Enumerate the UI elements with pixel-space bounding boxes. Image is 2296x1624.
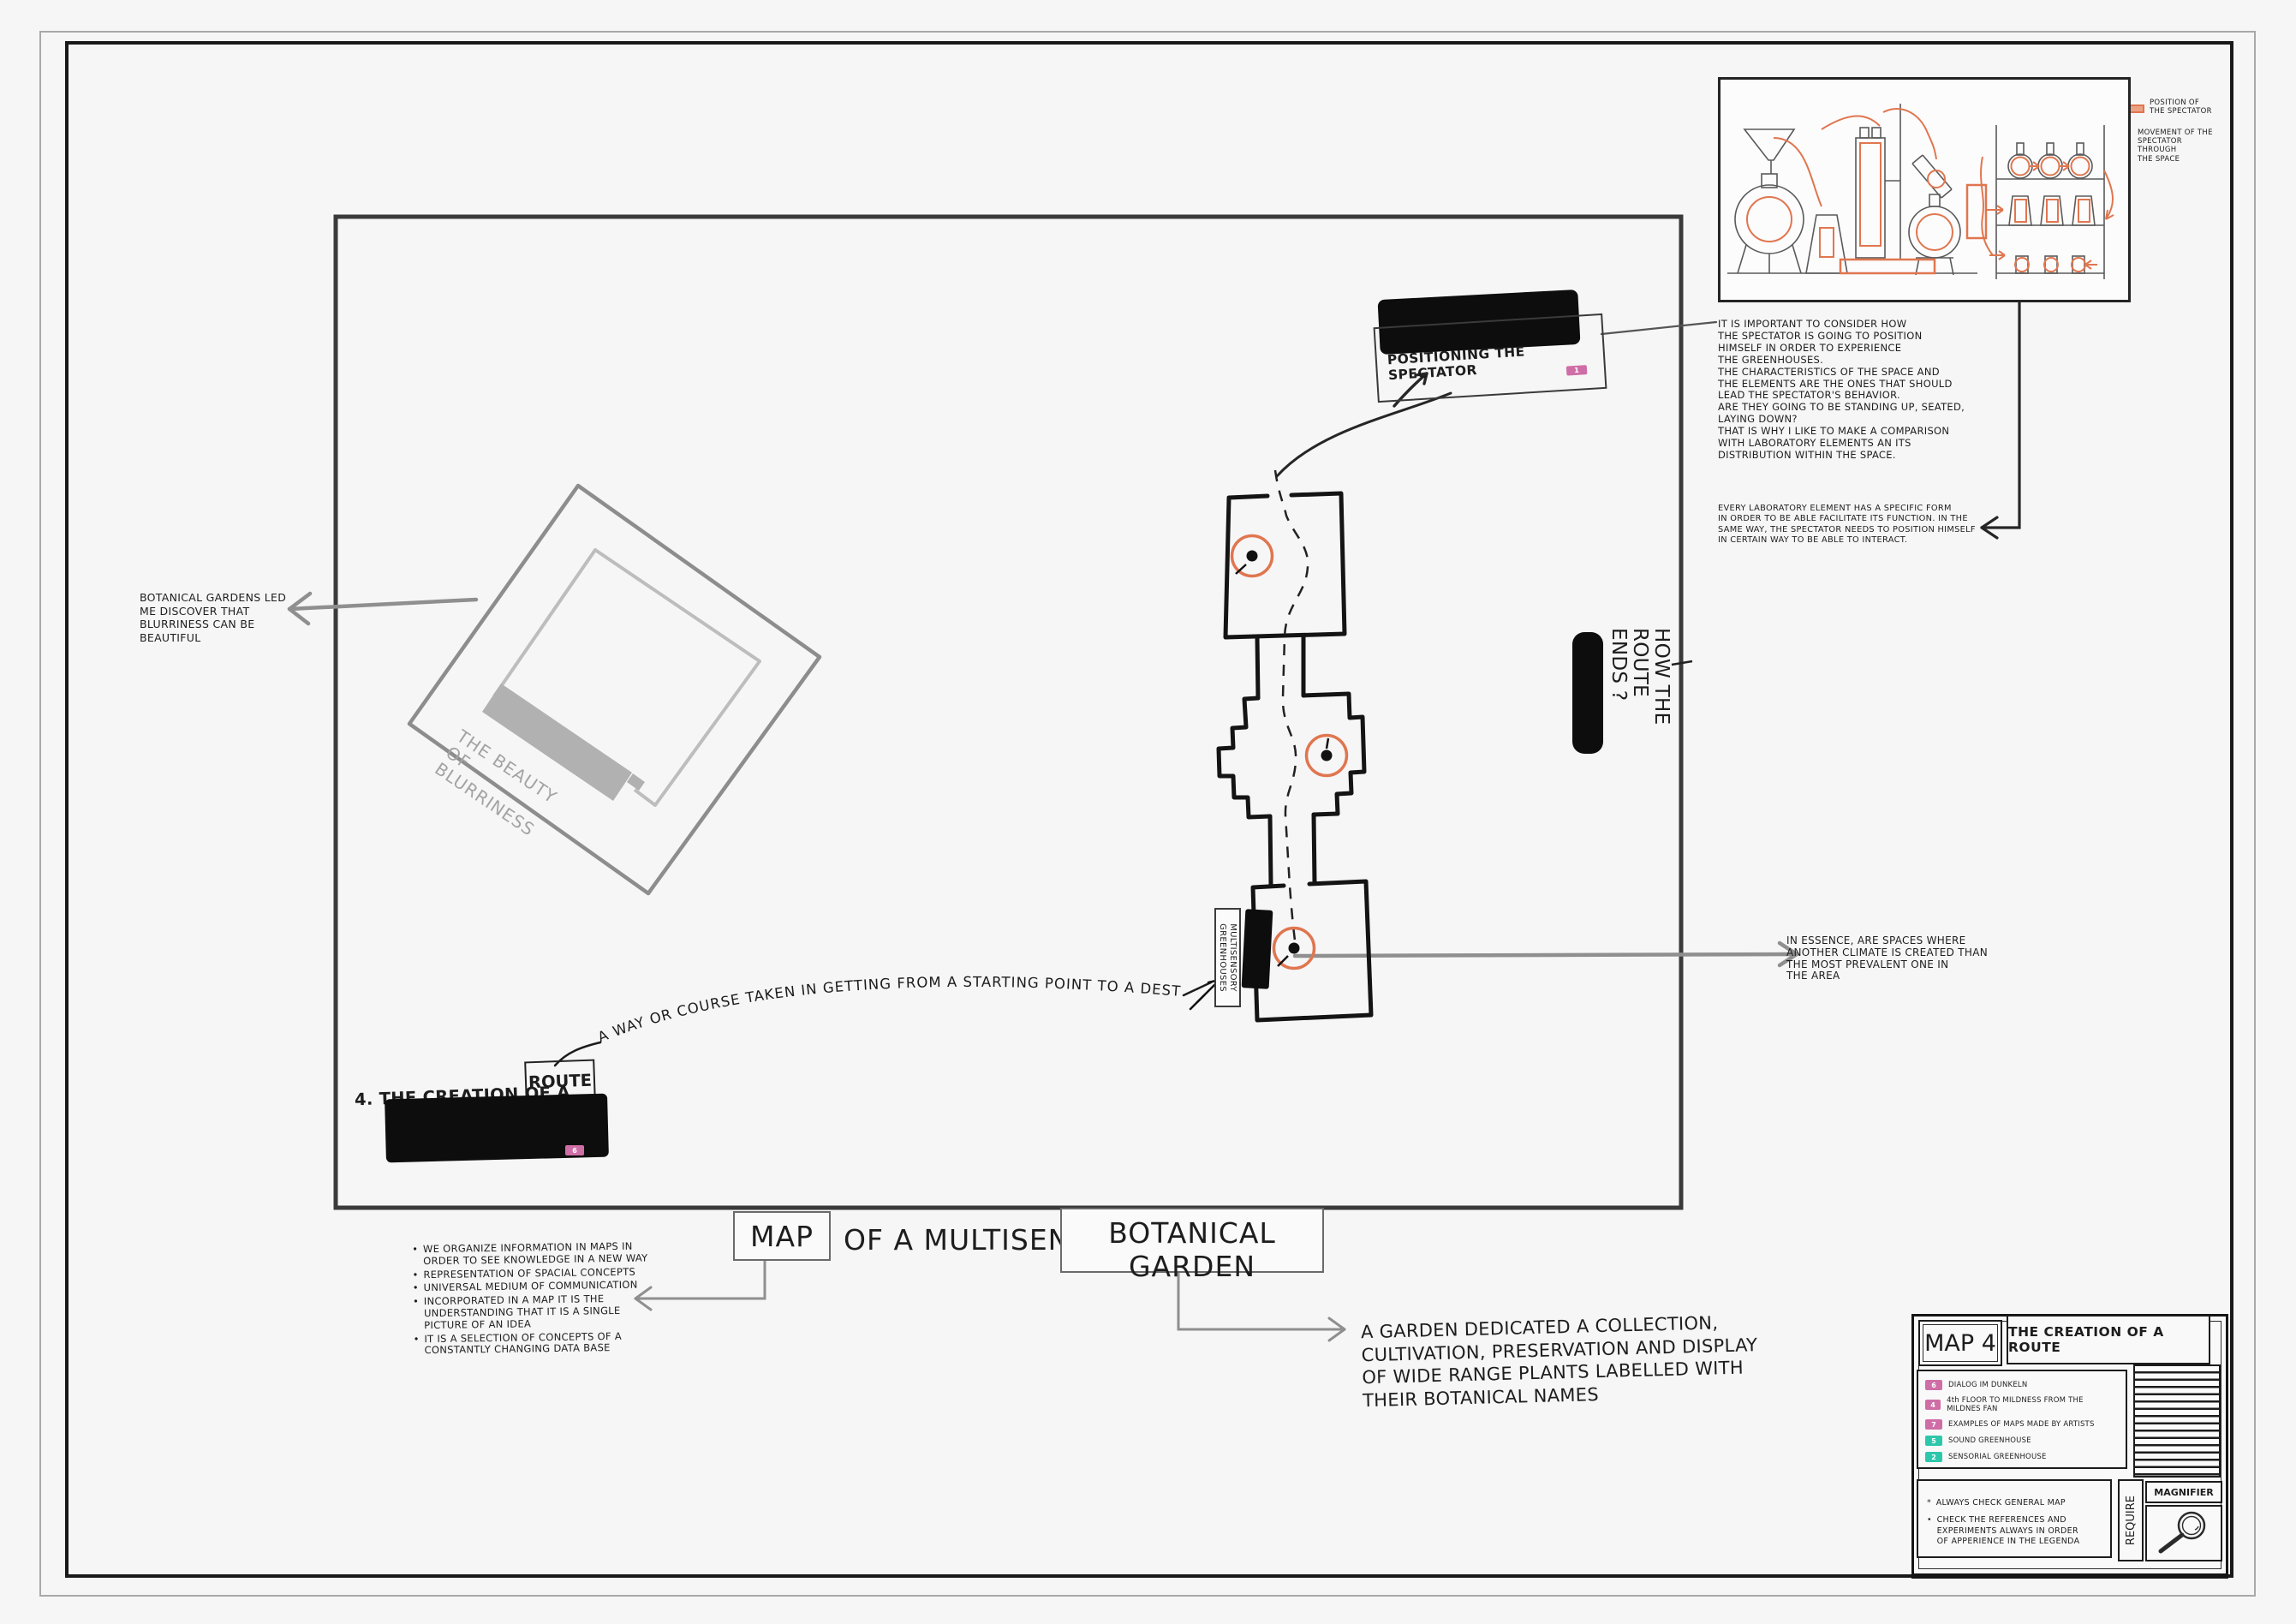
garden-definition: A GARDEN DEDICATED A COLLECTION, CULTIVA… [1361, 1311, 1774, 1412]
legend-item: 6 DIALOG IM DUNKELN [1925, 1380, 2119, 1390]
note-item: * ALWAYS CHECK GENERAL MAP [1927, 1498, 2102, 1508]
bullet-icon: • [413, 1296, 419, 1331]
map-word-box: MAP [733, 1211, 831, 1261]
require-box: REQUIRE [2118, 1479, 2144, 1561]
redacted-bar-greenhouse [1242, 909, 1273, 989]
bullet-icon: • [1927, 1515, 1932, 1547]
greenhouses-label: MULTISENSORY GREENHOUSES [1214, 908, 1241, 1007]
legend-item: 4 4th FLOOR TO MILDNESS FROM THE MILDNES… [1925, 1396, 2119, 1413]
sheet-name-box: THE CREATION OF A ROUTE [2007, 1315, 2210, 1364]
notes-box: * ALWAYS CHECK GENERAL MAP • CHECK THE R… [1917, 1479, 2112, 1558]
reference-badge: 6 [565, 1145, 584, 1155]
bullet-icon: • [412, 1244, 418, 1268]
botanical-garden-box: BOTANICAL GARDEN [1060, 1208, 1324, 1273]
note-item: • CHECK THE REFERENCES AND EXPERIMENTS A… [1927, 1515, 2102, 1547]
asterisk-icon: * [1927, 1498, 1931, 1508]
in-essence-note: IN ESSENCE, ARE SPACES WHERE ANOTHER CLI… [1786, 935, 2009, 982]
magnifier-label: MAGNIFIER [2154, 1487, 2213, 1498]
legend-badge: 7 [1925, 1419, 1942, 1430]
legend-badge: 6 [1925, 1380, 1942, 1390]
magnifier-label-box: MAGNIFIER [2145, 1481, 2222, 1503]
legend-box: 6 DIALOG IM DUNKELN 4 4th FLOOR TO MILDN… [1917, 1370, 2127, 1469]
legend-item: 2 SENSORIAL GREENHOUSE [1925, 1452, 2119, 1462]
reference-badge: 1 [1566, 365, 1588, 375]
map-number: MAP 4 [1920, 1322, 2001, 1364]
lab-legend-movement-label: MOVEMENT OF THE SPECTATOR THROUGH THE SP… [2138, 128, 2223, 164]
laboratory-illustration-box [1718, 77, 2131, 302]
legend-badge: 2 [1925, 1452, 1942, 1462]
bullet-icon: • [414, 1334, 420, 1358]
sheet-name: THE CREATION OF A ROUTE [2008, 1317, 2209, 1363]
botanical-gardens-note: BOTANICAL GARDENS LED ME DISCOVER THAT B… [140, 591, 311, 644]
magnifier-icon [2147, 1507, 2217, 1556]
legend-badge: 4 [1925, 1400, 1941, 1410]
magnifier-icon-box [2145, 1505, 2222, 1561]
drawing-sheet: A WAY OR COURSE TAKEN IN GETTING FROM A … [0, 0, 2296, 1624]
list-item: •IT IS A SELECTION OF CONCEPTS OF A CONS… [414, 1329, 696, 1357]
laboratory-sketch [1721, 80, 2123, 295]
legend-badge: 5 [1925, 1436, 1942, 1446]
title-block: MAP 4 THE CREATION OF A ROUTE 6 DIALOG I… [1911, 1314, 2228, 1579]
list-item: •INCORPORATED IN A MAP IT IS THE UNDERST… [413, 1293, 696, 1332]
how-route-ends-note: HOW THE ROUTE ENDS ? [1605, 628, 1672, 749]
redacted-bar-route-end [1572, 632, 1603, 754]
lab-legend-position-label: POSITION OF THE SPECTATOR [2150, 99, 2227, 116]
positioning-spectator-label: POSITIONING THE SPECTATOR 1 [1374, 313, 1607, 403]
hatched-panel [2133, 1364, 2221, 1478]
bullet-icon: • [413, 1283, 419, 1295]
legend-item: 7 EXAMPLES OF MAPS MADE BY ARTISTS [1925, 1419, 2119, 1430]
positioning-spectator-text: POSITIONING THE SPECTATOR [1387, 339, 1604, 383]
require-label: REQUIRE [2125, 1496, 2138, 1545]
map-number-box: MAP 4 [1918, 1320, 2002, 1366]
bullet-icon: • [413, 1269, 419, 1281]
laboratory-paragraph: EVERY LABORATORY ELEMENT HAS A SPECIFIC … [1718, 504, 1983, 546]
legend-item: 5 SOUND GREENHOUSE [1925, 1436, 2119, 1446]
map-concepts-list: •WE ORGANIZE INFORMATION IN MAPS IN ORDE… [412, 1240, 696, 1358]
list-item: •WE ORGANIZE INFORMATION IN MAPS IN ORDE… [412, 1240, 695, 1268]
spectator-paragraph: IT IS IMPORTANT TO CONSIDER HOW THE SPEC… [1718, 319, 2016, 462]
